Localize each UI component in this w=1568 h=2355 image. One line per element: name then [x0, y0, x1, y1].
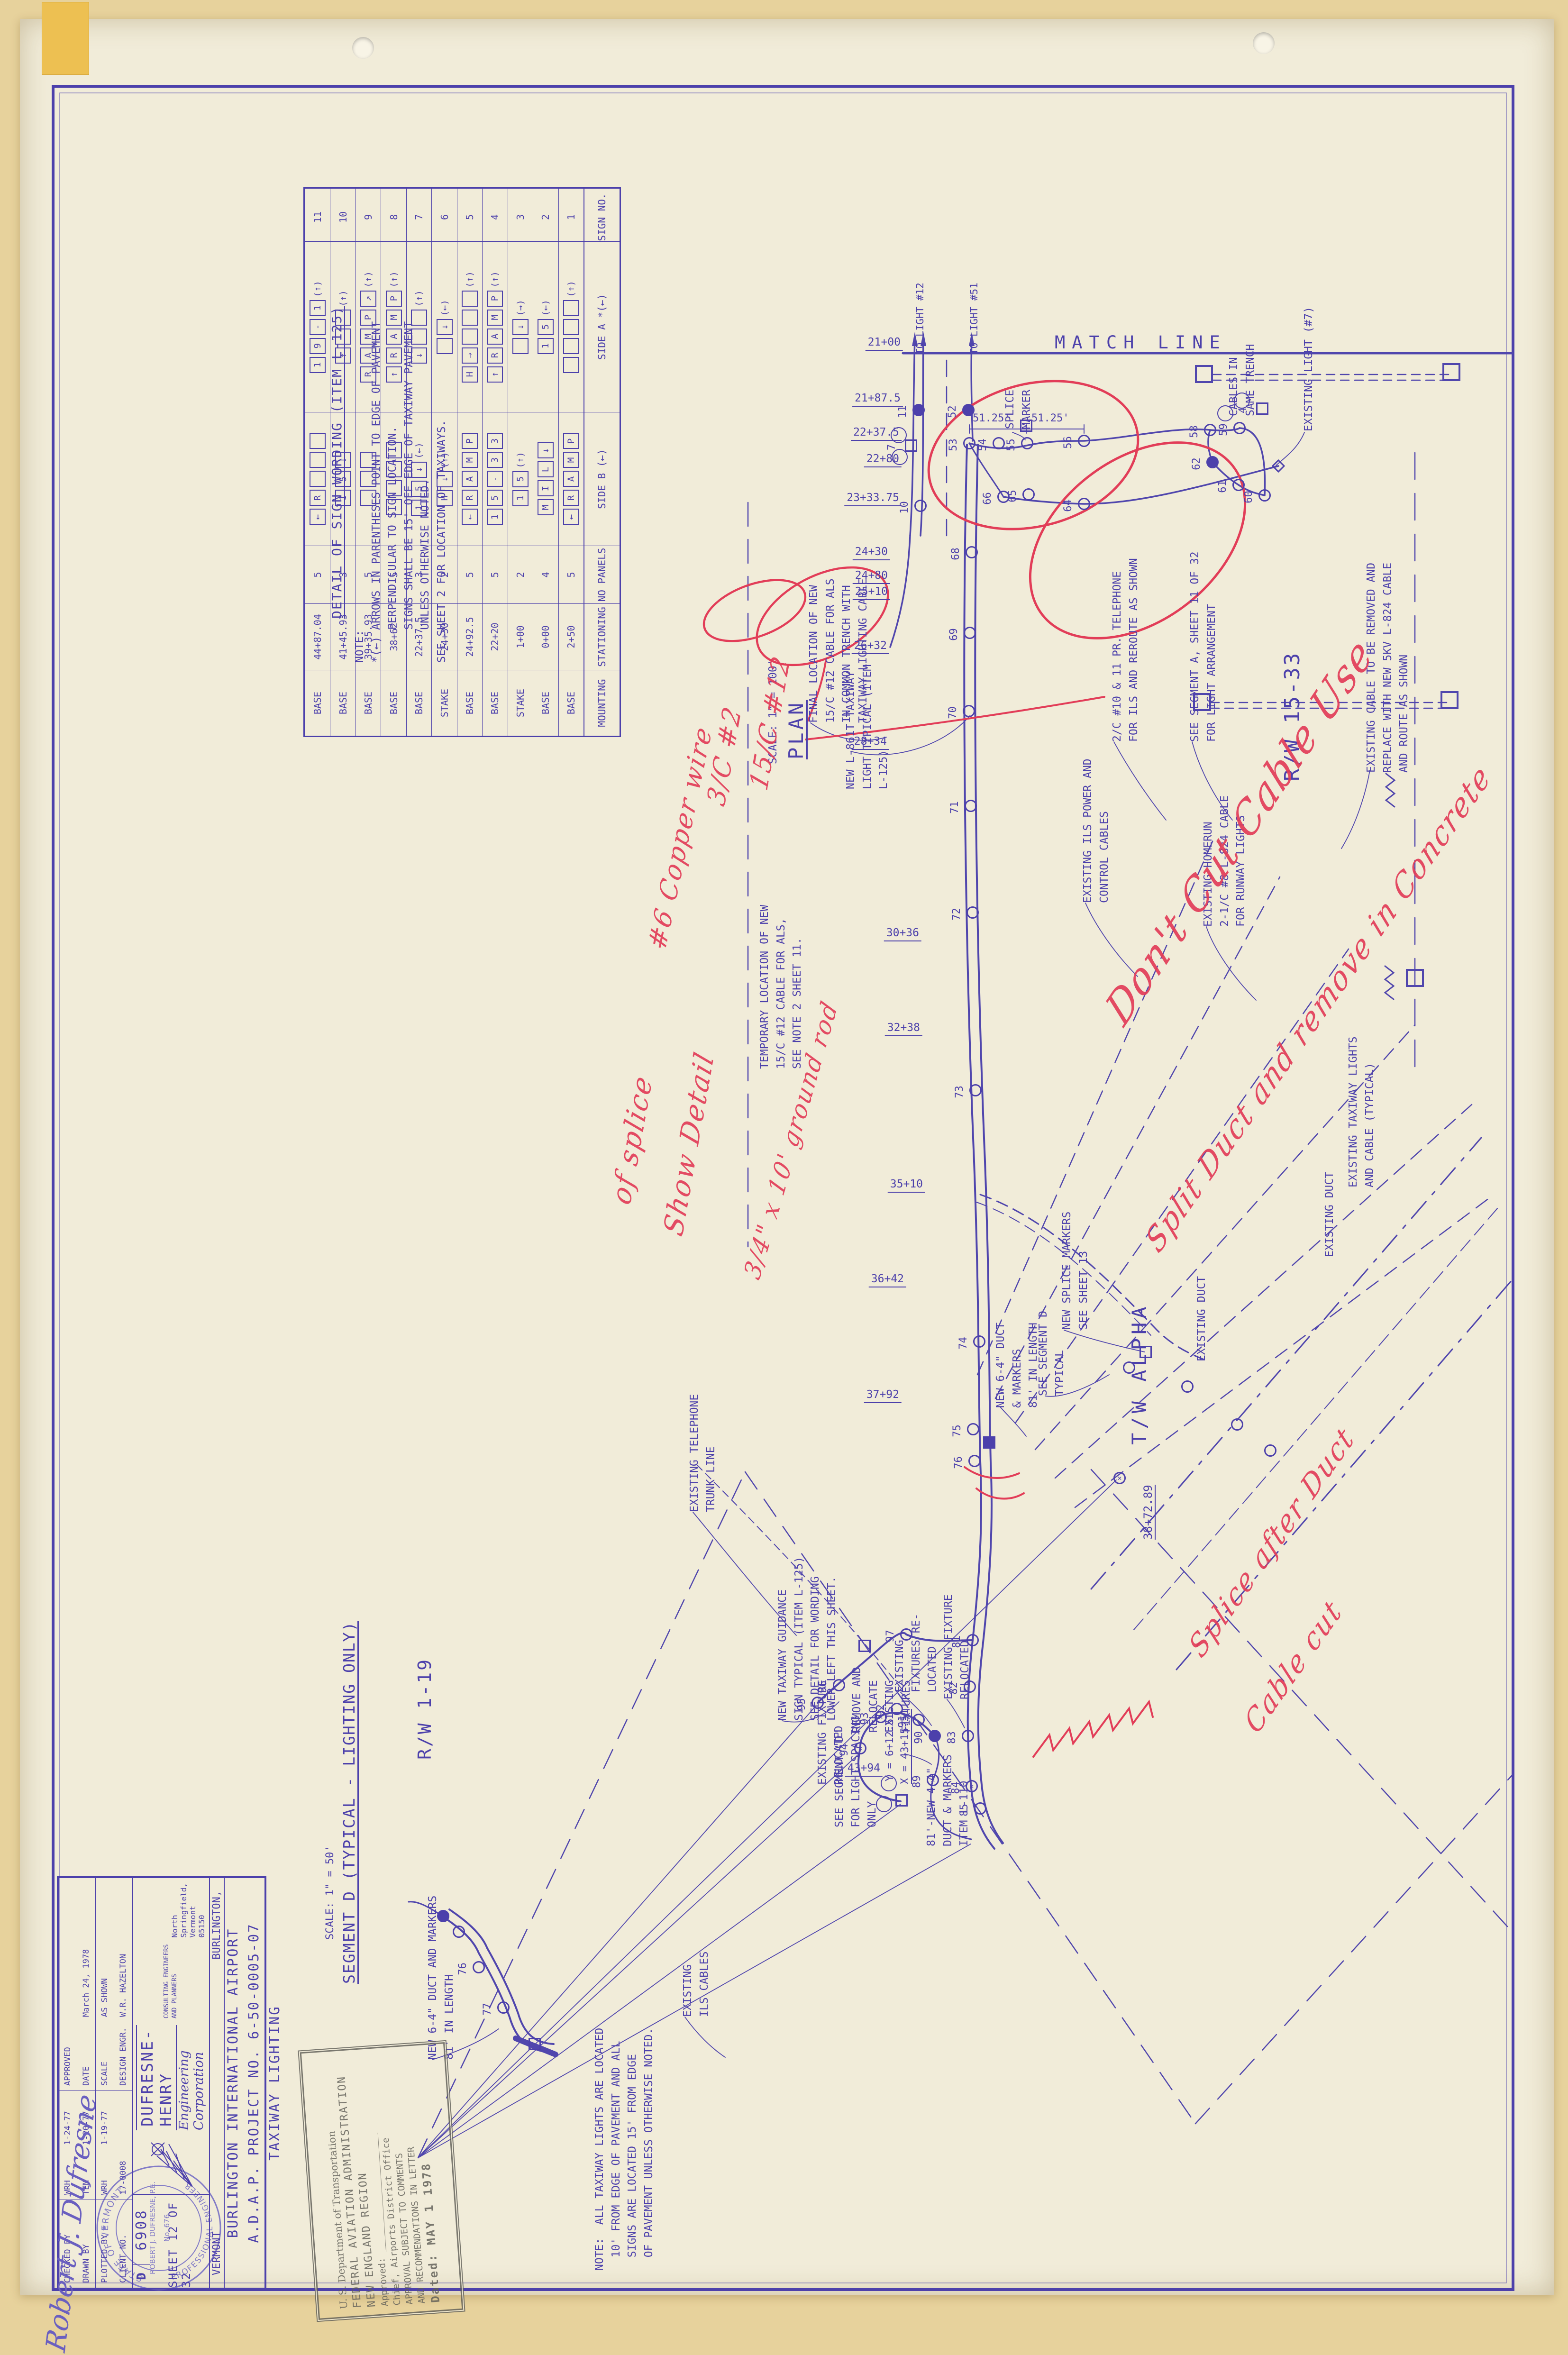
light-symbol — [964, 1680, 976, 1693]
light-number: 66 — [982, 492, 994, 505]
light-number: 76 — [457, 1962, 469, 1975]
taxiway-light: 54 — [993, 437, 1005, 449]
light-symbol — [912, 404, 925, 416]
sign-panel-count: 5 — [356, 546, 381, 604]
light-symbol — [962, 1730, 974, 1742]
taxiway-light — [983, 1436, 995, 1449]
light-symbol — [473, 1961, 485, 1973]
taxiway-light: 73 — [969, 1084, 982, 1096]
faa-approval-stamp: U. S. Department of TransportationFEDERA… — [300, 2042, 464, 2320]
plan-callout: Y = 6+12.5 — [882, 1719, 898, 1781]
sign-stationing: 1+00 — [508, 604, 533, 670]
field-value-2: AS SHOWN — [96, 1878, 114, 2022]
sign-panel: 5 — [538, 319, 554, 335]
field-value-2 — [59, 1878, 77, 2022]
sign-mounting: BASE — [559, 670, 583, 736]
sign-panel: R — [462, 490, 478, 506]
taxiway-light — [858, 1640, 871, 1652]
light-symbol — [891, 1703, 903, 1715]
sign-arrow-note: (←) — [414, 442, 424, 458]
sign-panel — [462, 310, 478, 326]
light-symbol — [914, 500, 927, 512]
sign-table-row: BASE 39+35.93 5 RAMP↗(↑) 9 — [356, 189, 381, 736]
taxiway-light: 52 — [962, 404, 975, 416]
plan-callout: TO LIGHT #12 — [913, 283, 928, 355]
sign-table-row: BASE 24+92.5 5 ←RAMP H→(↑) 5 — [457, 189, 482, 736]
plan-callout: 51.25' — [973, 411, 1010, 426]
light-number: 81 — [951, 1635, 963, 1648]
sign-arrow-note: (←) — [540, 300, 551, 316]
sign-number: 8 — [381, 193, 406, 242]
plan-callout: EXISTING ILS CABLES — [680, 1952, 712, 2017]
sign-panel: → — [462, 347, 478, 364]
location-burlington: BURLINGTON, — [211, 1890, 223, 1960]
sign-mounting: BASE — [457, 670, 482, 736]
sign-number: 7 — [407, 193, 431, 242]
title-block-field-row: PLOTTED BY WRH 1-19-77 SCALE AS SHOWN — [96, 1878, 114, 2288]
light-symbol — [963, 437, 975, 449]
light-symbol — [963, 705, 975, 717]
light-symbol — [900, 1628, 912, 1641]
taxiway-light: 72 — [966, 906, 979, 919]
light-symbol — [927, 1774, 939, 1786]
plan-callout: EXISTING TAXIWAY LIGHTS AND CABLE (TYPIC… — [1345, 1037, 1378, 1188]
sign-stationing: 41+45.93 — [330, 604, 355, 670]
plan-callout: TO LIGHT #51 — [967, 283, 982, 355]
light-number: 84 — [950, 1781, 962, 1794]
light-number: 92 — [875, 1704, 887, 1717]
light-number: 89 — [911, 1775, 923, 1788]
sign-stationing: 0+00 — [533, 604, 558, 670]
sign-table-row: BASE 22+37.5 3 15↓(←) ↓(↑) 7 — [406, 189, 431, 736]
plan-callout: T/W ALPHA — [1124, 1303, 1154, 1445]
sign-mounting: BASE — [407, 670, 431, 736]
light-symbol — [1022, 488, 1035, 501]
station-label: 35+10 — [888, 1178, 925, 1193]
sign-arrow-note: (←) — [439, 300, 450, 316]
sign-panel: ← — [310, 509, 326, 525]
taxiway-light: 81 — [966, 1634, 979, 1646]
title-block: CHECKED BY WRH 1-24-77 APPROVED DRAWN BY… — [57, 1876, 266, 2290]
field-label: PLOTTED BY — [96, 2200, 114, 2288]
sign-number: 11 — [305, 193, 330, 242]
light-number: 70 — [947, 706, 959, 719]
sign-panel: 1 — [310, 357, 326, 373]
header-sign-no: SIGN NO. — [584, 193, 620, 242]
light-symbol — [1256, 402, 1268, 415]
light-symbol — [1204, 424, 1216, 436]
light-symbol — [973, 1335, 985, 1348]
light-symbol — [529, 2038, 541, 2050]
station-label: 37+92 — [864, 1388, 902, 1403]
light-symbol — [1234, 392, 1250, 409]
sign-side-b-panels: H↓(↑) — [432, 412, 456, 546]
plan-callout: NEW 6-4" DUCT & MARKERS 81' IN LENGTH — [993, 1323, 1042, 1408]
sign-panel: ↑ — [386, 366, 402, 383]
field-value: WRH — [96, 2150, 114, 2200]
sign-side-b-panels: MIL↓ — [533, 412, 558, 546]
sign-stationing: 22+37.5 — [407, 604, 431, 670]
light-symbol — [966, 1634, 979, 1646]
sign-mounting: BASE — [356, 670, 381, 736]
plan-callout: 38+72.89 — [1140, 1485, 1157, 1540]
taxiway-light: 65 — [1022, 488, 1035, 501]
light-number: 83 — [946, 1731, 958, 1744]
sign-number: 10 — [330, 193, 355, 242]
light-symbol — [1232, 479, 1245, 491]
light-number: 59 — [1218, 423, 1230, 436]
light-number: 71 — [949, 801, 961, 814]
sign-panel-count: 5 — [483, 546, 507, 604]
sign-panel — [563, 357, 579, 373]
light-number: 95 — [796, 1698, 808, 1711]
sign-side-a-panels: 15(←) — [533, 242, 558, 412]
sign-side-a-panels: (↑) — [559, 242, 583, 412]
sign-panel: ↓ — [411, 462, 427, 478]
light-symbol — [892, 449, 908, 465]
sign-panel: M — [386, 310, 402, 326]
sign-panel — [462, 329, 478, 345]
taxiway-light: B — [876, 1796, 892, 1812]
taxiway-light: 85 — [974, 1802, 986, 1815]
light-symbol — [1113, 1472, 1126, 1484]
plan-callout: TEMPORARY LOCATION OF NEW 15/C #12 CABLE… — [757, 905, 806, 1069]
sign-panel: L — [538, 462, 554, 478]
light-number: 75 — [951, 1424, 963, 1437]
light-number: 55 — [1005, 438, 1017, 451]
sign-side-a-panels: ↓(→) — [508, 242, 533, 412]
light-symbol — [1078, 498, 1090, 510]
light-number: 77 — [482, 2003, 493, 2016]
sign-panel: P — [360, 310, 376, 326]
sign-table-row: BASE 0+00 4 MIL↓ 15(←) 2 — [533, 189, 558, 736]
station-label: 24+30 — [853, 546, 890, 560]
light-number: 97 — [884, 1630, 896, 1643]
taxiway-light: 10 — [914, 500, 927, 512]
plan-callout: EXISTING ILS POWER AND CONTROL CABLES — [1080, 758, 1112, 903]
light-symbol — [1021, 437, 1033, 449]
light-symbol — [453, 1926, 465, 1938]
sign-mounting: BASE — [483, 670, 507, 736]
light-symbol — [1264, 1444, 1276, 1457]
sign-table-row: BASE 44+87.04 5 ←R 19-1(↑) 11 — [305, 189, 330, 736]
sign-panel: M — [462, 452, 478, 468]
station-label: 30+36 — [884, 927, 921, 941]
light-number: 53 — [948, 438, 959, 451]
sign-panel: A — [487, 329, 503, 345]
taxiway-light — [1272, 460, 1285, 472]
sign-side-b-panels: ←R — [305, 412, 330, 546]
location-vermont: VERMONT — [211, 2231, 223, 2275]
sign-panel-count: 4 — [533, 546, 558, 604]
sign-panel: 5 — [411, 481, 427, 497]
plan-callout: NEW L-861T TAXIWAY LIGHT TYPICAL (ITEM L… — [843, 665, 892, 789]
sign-panel — [386, 481, 402, 497]
sign-panel — [563, 319, 579, 335]
sign-table-row: BASE 2+50 5 ←RAMP (↑) 1 — [558, 189, 583, 736]
station-label: 21+00 — [866, 336, 903, 351]
sign-panel: P — [462, 433, 478, 449]
sign-panel: ↑ — [335, 347, 351, 364]
light-number: 56 — [1062, 436, 1074, 449]
sign-side-a-panels: ↓(←) — [432, 242, 456, 412]
taxiway-light: 62 — [1206, 456, 1219, 468]
light-symbol — [1206, 456, 1219, 468]
taxiway-light: 68 — [966, 546, 978, 558]
sign-stationing: 44+87.04 — [305, 604, 330, 670]
light-symbol — [968, 1455, 981, 1467]
sign-panel: 5 — [512, 471, 529, 487]
sign-panel — [310, 433, 326, 449]
sign-side-a-panels: ↑RAMP(↑) — [381, 242, 406, 412]
light-symbol — [1181, 1380, 1194, 1393]
sign-panel: ↑ — [487, 366, 503, 383]
sign-arrow-note: (↑) — [439, 452, 450, 468]
sign-panel — [563, 300, 579, 316]
sign-side-a-panels: H→(↑) — [457, 242, 482, 412]
plan-callout: SEGMENT D (TYPICAL - LIGHTING ONLY) — [337, 1621, 361, 1984]
scanned-drawing-sheet: { "colors":{"paper":"#e7d29c","sheet":"#… — [0, 0, 1568, 2339]
taxiway-light: 84 — [966, 1780, 978, 1792]
sign-panel: 1 — [538, 338, 554, 354]
plan-callout: EXISTING FIXTURES RE- LOCATED — [892, 1614, 941, 1692]
taxiway-light: 97 — [900, 1628, 912, 1641]
sign-side-b-panels: 15↓ — [330, 412, 355, 546]
sign-side-b-panels — [356, 412, 381, 546]
sign-side-a-panels: 19-1(↑) — [305, 242, 330, 412]
sign-panel: R — [360, 366, 376, 383]
light-symbol — [876, 1796, 892, 1812]
sign-number: 4 — [483, 193, 507, 242]
sign-arrow-note: (↑) — [515, 452, 526, 468]
light-symbol — [993, 437, 1005, 449]
sign-panel-count: 5 — [457, 546, 482, 604]
sign-panel: ↗ — [360, 291, 376, 307]
light-number: 52 — [947, 405, 958, 418]
light-number: 10 — [899, 501, 911, 514]
taxiway-light: 4 — [1256, 402, 1268, 415]
sign-panel — [360, 490, 376, 506]
light-symbol — [974, 1802, 986, 1815]
sign-panel: 1 — [487, 509, 503, 525]
sign-panel: H — [437, 490, 453, 506]
taxiway-light — [453, 1926, 465, 1938]
taxiway-light: 95 — [811, 1697, 824, 1709]
station-label: 23+33.75 — [844, 492, 902, 506]
field-label-2: APPROVED — [59, 2022, 77, 2091]
project-title-line2: A.D.A.P. PROJECT NO. 6-50-0005-07 — [246, 1923, 262, 2243]
sign-number: 5 — [457, 193, 482, 242]
taxiway-light: 59 — [1233, 422, 1246, 434]
light-number: 64 — [1062, 499, 1074, 512]
sign-panel: 1 — [335, 490, 351, 506]
light-symbol — [962, 404, 975, 416]
light-symbol — [854, 1742, 866, 1754]
taxiway-light: A — [881, 1775, 897, 1791]
taxiway-light — [1264, 1444, 1276, 1457]
sign-arrow-note: (↑) — [312, 281, 323, 297]
light-number: 94 — [839, 1743, 850, 1756]
light-number: 58 — [1188, 425, 1200, 438]
light-symbol — [1233, 422, 1246, 434]
sign-side-b-panels — [381, 412, 406, 546]
sign-table-row: BASE 22+20 5 15-33 ↑RAMP(↑) 4 — [482, 189, 507, 736]
company-subname: Engineering Corporation — [177, 2025, 206, 2130]
project-title-line3: TAXIWAY LIGHTING — [266, 2005, 283, 2160]
field-value: 17-0008 — [114, 2150, 132, 2200]
company-tagline: CONSULTING ENGINEERS AND PLANNERS — [163, 1944, 179, 2019]
plan-callout: EXISTING DUCT — [1322, 1172, 1338, 1257]
sign-arrow-note: (↑) — [389, 271, 399, 287]
sign-arrow-note: (↑) — [566, 281, 576, 297]
sign-panel: M — [360, 329, 376, 345]
sign-panel: M — [538, 500, 554, 516]
sign-table-row: BASE 38+62 5 ↑RAMP(↑) 8 — [381, 189, 406, 736]
light-number: 54 — [977, 438, 989, 451]
light-symbol — [1123, 1361, 1135, 1374]
taxiway-light — [1123, 1361, 1135, 1374]
station-label: 36+42 — [869, 1273, 906, 1287]
sign-mounting: BASE — [533, 670, 558, 736]
sign-panel — [512, 338, 529, 354]
light-symbol — [858, 1640, 871, 1652]
header-side-a: SIDE A *(←) — [584, 242, 620, 412]
taxiway-light — [895, 1794, 908, 1807]
header-mounting: MOUNTING — [584, 670, 620, 736]
sign-mounting: BASE — [330, 670, 355, 736]
sign-panel — [386, 443, 402, 459]
sign-panel: R — [310, 490, 326, 506]
light-number: 96 — [817, 1680, 829, 1693]
light-number: 90 — [913, 1731, 925, 1744]
light-symbol — [833, 1679, 845, 1691]
taxiway-light: 82 — [964, 1680, 976, 1693]
sign-panel-count: 5 — [381, 546, 406, 604]
sign-side-a-panels: ↑RAMP(↑) — [483, 242, 507, 412]
sign-panel-count: 2 — [432, 546, 456, 604]
taxiway-light: 58 — [1204, 424, 1216, 436]
sign-panel: 9 — [310, 338, 326, 354]
field-value-2: W.R. HAZELTON — [114, 1878, 132, 2022]
plan-callout: NOTE: ALL TAXIWAY LIGHTS ARE LOCATED 10'… — [592, 2028, 657, 2271]
sign-panel — [360, 471, 376, 487]
sign-stationing: 24+92.5 — [457, 604, 482, 670]
taxiway-light: 60 — [1258, 489, 1271, 502]
sign-panel: R — [487, 347, 503, 364]
light-symbol — [929, 1730, 941, 1742]
light-symbol — [1020, 420, 1032, 432]
sign-arrow-note: (↑) — [363, 271, 374, 287]
taxiway-light — [1113, 1472, 1126, 1484]
company-address: North Springfield, Vermont 05150 — [170, 1883, 206, 1938]
sign-panel: ↓ — [411, 347, 427, 364]
sign-panel: A — [386, 329, 402, 345]
sign-side-b-panels: ←RAMP — [559, 412, 583, 546]
company-name: DUFRESNE-HENRY — [136, 2025, 177, 2130]
light-symbol — [437, 1910, 449, 1922]
sign-side-a-panels: ↑(↑) — [330, 242, 355, 412]
header-side-b: SIDE B (←) — [584, 412, 620, 546]
sign-panel: A — [462, 471, 478, 487]
sign-panel: 5 — [487, 490, 503, 506]
taxiway-light: 55 — [1021, 437, 1033, 449]
sign-panel: P — [487, 291, 503, 307]
sign-wording-table: BASE 2+50 5 ←RAMP (↑) 1 BASE 0+00 4 MIL↓… — [303, 187, 621, 737]
light-symbol — [912, 1714, 925, 1726]
sign-panel: A — [563, 471, 579, 487]
light-symbol — [1140, 1346, 1152, 1358]
sign-panel-count: 3 — [330, 546, 355, 604]
sign-panel: 3 — [487, 452, 503, 468]
light-number: 72 — [951, 908, 963, 921]
sign-panel: 1 — [310, 300, 326, 316]
light-symbol — [881, 1775, 897, 1791]
taxiway-light: 71 — [965, 800, 977, 812]
sign-panel — [335, 329, 351, 345]
plan-callout: SCALE: 1" = 50' — [322, 1845, 338, 1940]
sign-panel — [411, 310, 427, 326]
station-label: 21+87.5 — [852, 392, 903, 407]
taxiway-light: 89 — [927, 1774, 939, 1786]
light-symbol — [1217, 405, 1233, 421]
sign-panel: P — [386, 291, 402, 307]
sign-panel — [310, 471, 326, 487]
field-label-2: DESIGN ENGR. — [114, 2022, 132, 2091]
light-symbol — [1231, 1418, 1243, 1431]
sign-arrow-note: (→) — [515, 300, 526, 316]
light-number: 74 — [957, 1337, 969, 1350]
sign-panel: ↓ — [538, 443, 554, 459]
title-block-field-row: CLIENT NO. 17-0008 DESIGN ENGR. W.R. HAZ… — [114, 1878, 132, 2288]
header-panels: NO PANELS — [584, 546, 620, 604]
sign-panel — [462, 291, 478, 307]
plan-callout: 81'-NEW 4-4" DUCT & MARKERS ITEM L-110 — [923, 1754, 973, 1846]
sign-panel — [360, 452, 376, 468]
taxiway-light: 92 — [891, 1703, 903, 1715]
taxiway-light: 76 — [473, 1961, 485, 1973]
taxiway-light: 90 — [929, 1730, 941, 1742]
sign-panel: ← — [462, 509, 478, 525]
light-symbol — [983, 1436, 995, 1449]
light-number: 76 — [953, 1456, 965, 1469]
sign-number: 2 — [533, 193, 558, 242]
sign-side-a-panels: RAMP↗(↑) — [356, 242, 381, 412]
taxiway-light: 64 — [1078, 498, 1090, 510]
plan-callout: EXISTING TELEPHONE TRUNK LINE — [686, 1394, 719, 1512]
field-label-2: SCALE — [96, 2022, 114, 2091]
light-symbol — [964, 627, 976, 639]
taxiway-light: 77 — [497, 2001, 510, 2014]
sign-side-b-panels: 15(↑) — [508, 412, 533, 546]
sign-panel — [335, 310, 351, 326]
sheet-number: SHEET 12 OF 32 — [150, 2195, 209, 2288]
sign-panel-count: 2 — [508, 546, 533, 604]
dufresne-henry-logo — [147, 2137, 195, 2189]
sign-panel-count: 5 — [305, 546, 330, 604]
light-number: 82 — [948, 1682, 960, 1695]
taxiway-light: 91 — [912, 1714, 925, 1726]
sign-panel: 1 — [411, 500, 427, 516]
sign-mounting: STAKE — [432, 670, 456, 736]
header-stationing: STATIONING — [584, 604, 620, 670]
sign-side-b-panels: 15↓(←) — [407, 412, 431, 546]
sign-panel: R — [386, 347, 402, 364]
sign-panel: R — [563, 490, 579, 506]
plan-callout: EXISTING LIGHT (#7) — [1301, 307, 1317, 431]
sign-number: 1 — [559, 193, 583, 242]
light-symbol — [969, 1084, 982, 1096]
taxiway-light: B — [892, 449, 908, 465]
